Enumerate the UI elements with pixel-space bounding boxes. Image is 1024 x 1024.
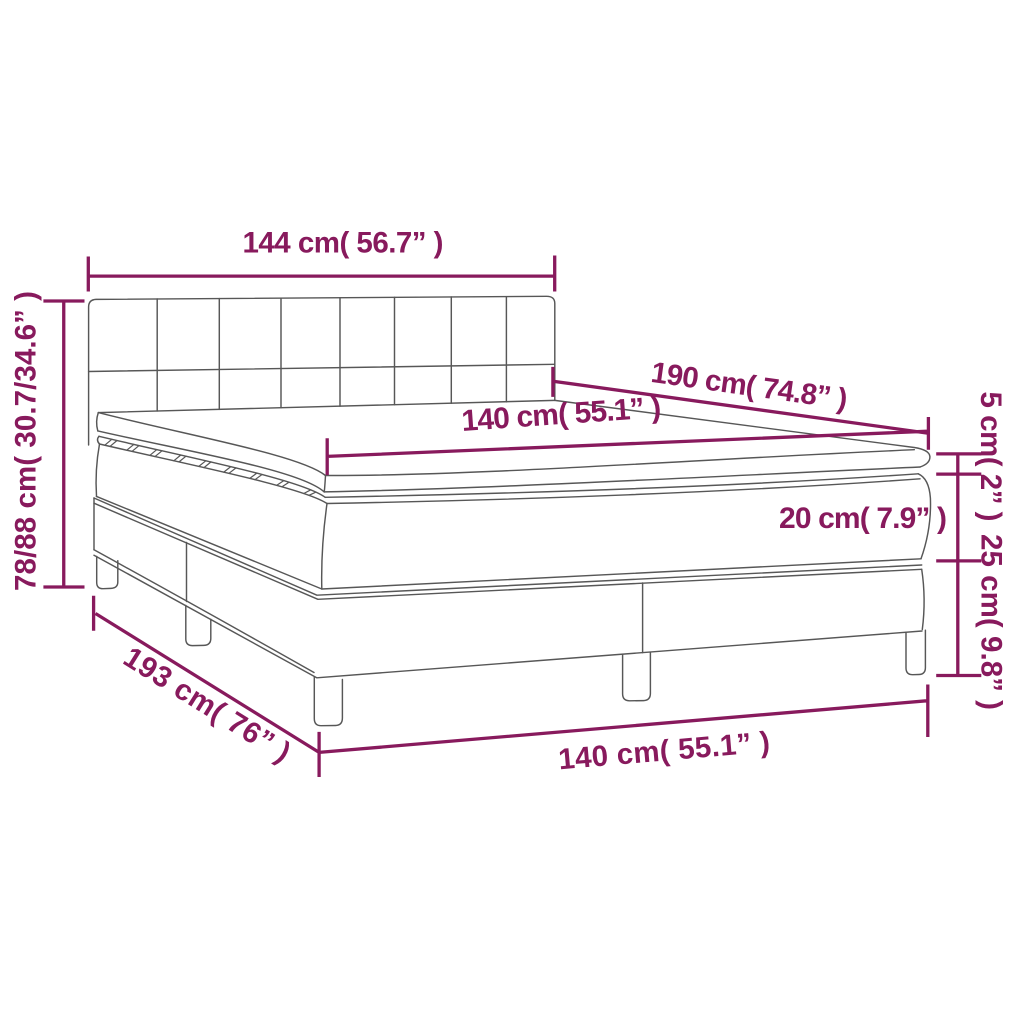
svg-text:20 cm( 7.9” ): 20 cm( 7.9” ) <box>779 502 947 535</box>
svg-text:25 cm( 9.8” ): 25 cm( 9.8” ) <box>975 534 1008 710</box>
svg-text:144 cm( 56.7” ): 144 cm( 56.7” ) <box>243 227 444 260</box>
svg-text:5 cm( 2” ): 5 cm( 2” ) <box>974 392 1007 522</box>
svg-text:140 cm( 55.1” ): 140 cm( 55.1” ) <box>460 391 662 438</box>
svg-text:78/88 cm( 30.7/34.6” ): 78/88 cm( 30.7/34.6” ) <box>10 291 43 591</box>
svg-text:193 cm( 76” ): 193 cm( 76” ) <box>118 641 297 770</box>
svg-text:140 cm( 55.1” ): 140 cm( 55.1” ) <box>557 726 771 777</box>
